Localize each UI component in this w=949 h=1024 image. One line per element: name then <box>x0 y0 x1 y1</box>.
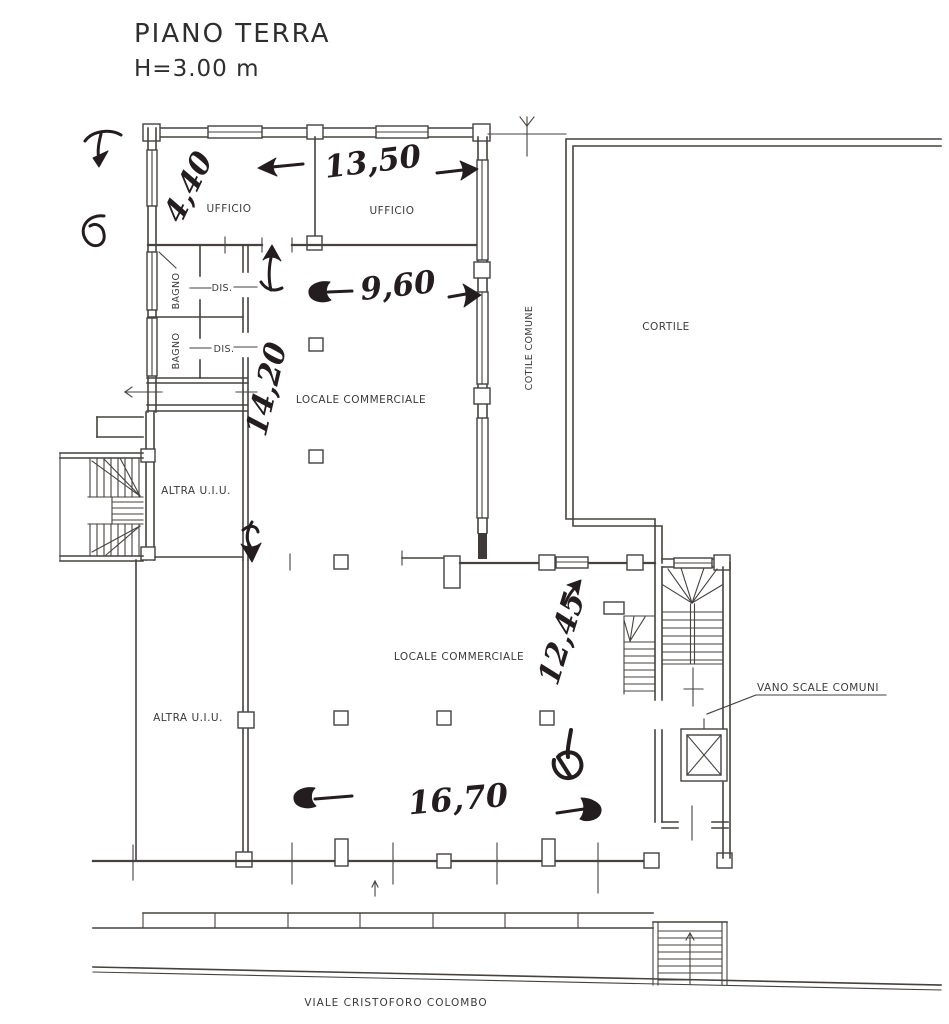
wall-pillar <box>539 555 555 570</box>
page-title: PIANO TERRA <box>134 19 330 49</box>
wall-pillar <box>334 555 348 569</box>
hand-arrow-down-left-wall <box>241 522 261 562</box>
hand-arrow-right-1 <box>437 161 478 180</box>
street: VIALE CRISTOFORO COLOMBO <box>93 967 941 1009</box>
floor-height-label: H=3.00 m <box>134 56 260 82</box>
floor-plan-drawing: PIANO TERRA H=3.00 m UFFICIO UFFICIO <box>0 0 949 1024</box>
central-dividing-wall <box>236 383 254 867</box>
wall-pillar <box>627 555 643 570</box>
title-block: PIANO TERRA H=3.00 m <box>134 19 330 82</box>
wall-pillar <box>714 555 730 570</box>
sidewalk <box>93 913 653 928</box>
office-labels: UFFICIO UFFICIO <box>206 203 414 217</box>
room-label-locale-lower: LOCALE COMMERCIALE <box>394 651 524 663</box>
hand-arrow-left-3 <box>294 788 352 808</box>
hand-mark-top-left <box>85 131 121 167</box>
hand-arrow-up-1 <box>261 245 282 290</box>
courtyard: CORTILE <box>488 117 941 563</box>
room-label-cotile-comune: COTILE COMUNE <box>524 306 535 391</box>
column <box>309 450 323 463</box>
hand-arrow-left-1 <box>258 158 303 176</box>
hand-arrow-left-2 <box>309 282 352 302</box>
bathroom-block: BAGNO DIS. BAGNO DIS. <box>148 245 257 383</box>
wall-pillar <box>141 547 155 560</box>
wall-end-cap <box>478 533 487 559</box>
hand-arrow-down-big <box>554 730 582 778</box>
entrance-door <box>662 806 728 840</box>
column <box>309 338 323 351</box>
wall-pillar <box>444 556 460 588</box>
wall-pillar <box>542 839 555 866</box>
corridor-wall: COTILE COMUNE <box>474 137 535 559</box>
room-label-locale-upper: LOCALE COMMERCIALE <box>296 394 426 406</box>
common-stairwell: VANO SCALE COMUNI <box>604 555 886 858</box>
exterior-staircase-left <box>60 453 143 561</box>
handwritten-measure-12-45: 12,45 <box>532 587 592 689</box>
wall-pillar <box>644 853 659 868</box>
wall-pillar <box>335 839 348 866</box>
column <box>334 711 348 725</box>
room-label-dis-lower: DIS. <box>214 344 235 355</box>
hallway-band <box>125 378 257 411</box>
wall-pillar <box>307 236 322 250</box>
handwritten-measure-4-40: 4,40 <box>158 146 220 229</box>
front-wall <box>93 839 732 896</box>
door-swing <box>159 252 176 268</box>
wall-pillar <box>474 388 490 404</box>
column <box>540 711 554 725</box>
room-label-cortile: CORTILE <box>642 321 690 333</box>
wall-pillar <box>141 449 155 462</box>
room-label-vano-scale: VANO SCALE COMUNI <box>757 682 879 694</box>
room-label-ufficio-right: UFFICIO <box>369 205 414 217</box>
elevator-shaft <box>681 719 727 781</box>
room-label-bagno-lower: BAGNO <box>171 333 182 370</box>
room-label-bagno-upper: BAGNO <box>171 273 182 310</box>
external-street-stair <box>653 922 727 985</box>
hand-mark-loop <box>83 216 104 246</box>
wall-pillar <box>437 854 451 868</box>
wall-pillar <box>143 124 160 141</box>
room-label-ufficio-left: UFFICIO <box>206 203 251 215</box>
handwritten-measure-13-50: 13,50 <box>322 138 423 186</box>
room-label-altra-upper: ALTRA U.I.U. <box>161 485 231 497</box>
hand-arrow-right-2 <box>449 284 481 307</box>
locale-upper: LOCALE COMMERCIALE <box>296 338 426 463</box>
room-label-altra-lower: ALTRA U.I.U. <box>153 712 223 724</box>
room-label-dis-upper: DIS. <box>212 283 233 294</box>
side-stair <box>604 602 654 694</box>
wall-pillar <box>236 852 252 867</box>
handwritten-measure-16-70: 16,70 <box>406 776 509 823</box>
wall-pillar <box>474 262 490 278</box>
main-stair <box>663 568 722 706</box>
stair-stub <box>604 602 624 614</box>
hand-arrow-right-3 <box>557 798 601 821</box>
street-label: VIALE CRISTOFORO COLOMBO <box>304 997 487 1009</box>
column <box>437 711 451 725</box>
leader-line <box>707 695 756 714</box>
wall-pillar <box>238 712 254 728</box>
handwritten-measure-9-60: 9,60 <box>359 264 438 308</box>
